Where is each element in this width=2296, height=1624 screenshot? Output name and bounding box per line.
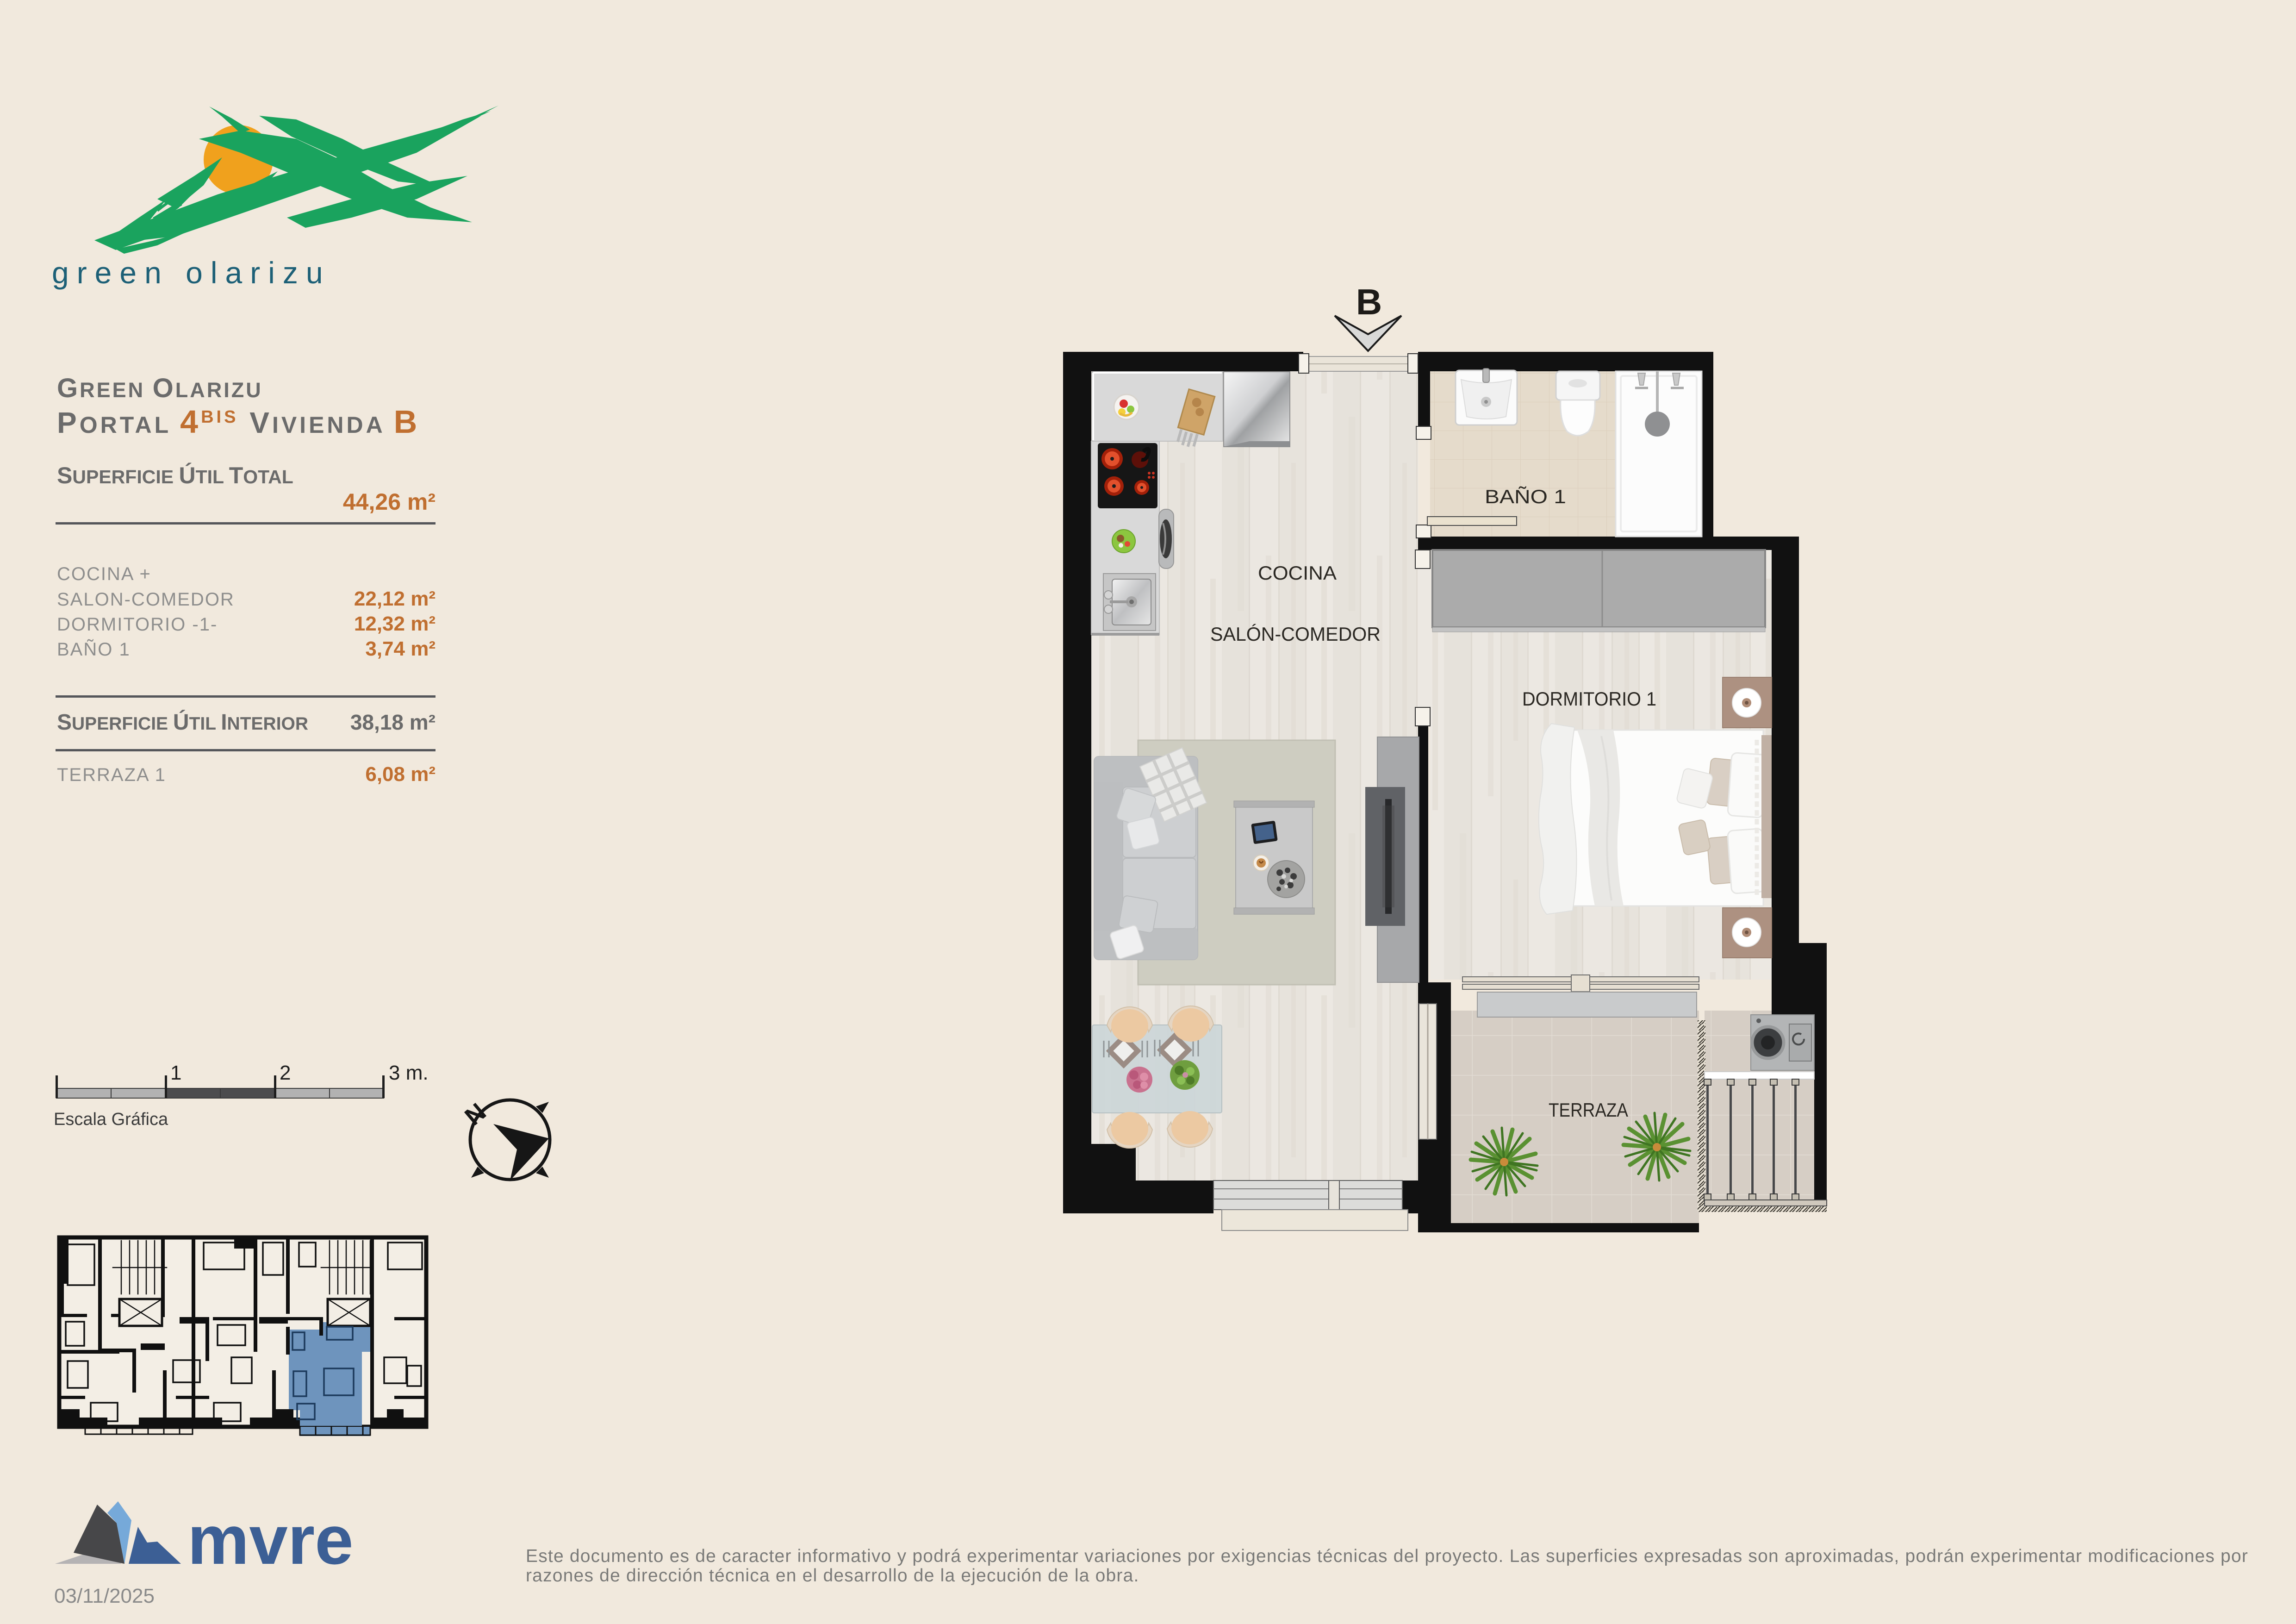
svg-text:COCINA +: COCINA + xyxy=(57,564,151,584)
svg-text:green olarizu: green olarizu xyxy=(52,256,331,290)
svg-text:3,74 m²: 3,74 m² xyxy=(365,637,436,660)
svg-text:TERRAZA: TERRAZA xyxy=(1549,1099,1628,1121)
svg-text:mvre: mvre xyxy=(187,1501,354,1579)
svg-text:03/11/2025: 03/11/2025 xyxy=(54,1585,155,1607)
svg-text:BAÑO 1: BAÑO 1 xyxy=(57,639,131,660)
svg-text:3 m.: 3 m. xyxy=(389,1062,429,1084)
svg-text:6,08 m²: 6,08 m² xyxy=(365,763,436,786)
svg-text:Escala Gráfica: Escala Gráfica xyxy=(54,1110,168,1129)
svg-text:B: B xyxy=(1356,281,1382,322)
svg-text:DORMITORIO 1: DORMITORIO 1 xyxy=(1522,688,1656,710)
svg-text:44,26 m²: 44,26 m² xyxy=(343,489,436,515)
svg-text:COCINA: COCINA xyxy=(1258,562,1337,584)
svg-text:razones de dirección técnica e: razones de dirección técnica en el desar… xyxy=(526,1566,1139,1586)
svg-text:38,18 m²: 38,18 m² xyxy=(350,710,436,734)
svg-text:BAÑO 1: BAÑO 1 xyxy=(1485,486,1566,507)
svg-text:12,32 m²: 12,32 m² xyxy=(354,612,436,635)
svg-text:SALON-COMEDOR: SALON-COMEDOR xyxy=(57,589,235,610)
svg-text:TERRAZA 1: TERRAZA 1 xyxy=(57,765,166,785)
svg-text:DORMITORIO -1-: DORMITORIO -1- xyxy=(57,614,218,635)
svg-text:Este documento es de caracter: Este documento es de caracter informativ… xyxy=(526,1546,2248,1566)
svg-text:1: 1 xyxy=(170,1062,181,1084)
svg-text:22,12 m²: 22,12 m² xyxy=(354,587,436,610)
svg-text:SUPERFICIE ÚTIL TOTAL: SUPERFICIE ÚTIL TOTAL xyxy=(57,462,293,488)
svg-text:2: 2 xyxy=(280,1062,291,1084)
svg-text:SALÓN-COMEDOR: SALÓN-COMEDOR xyxy=(1210,623,1381,645)
